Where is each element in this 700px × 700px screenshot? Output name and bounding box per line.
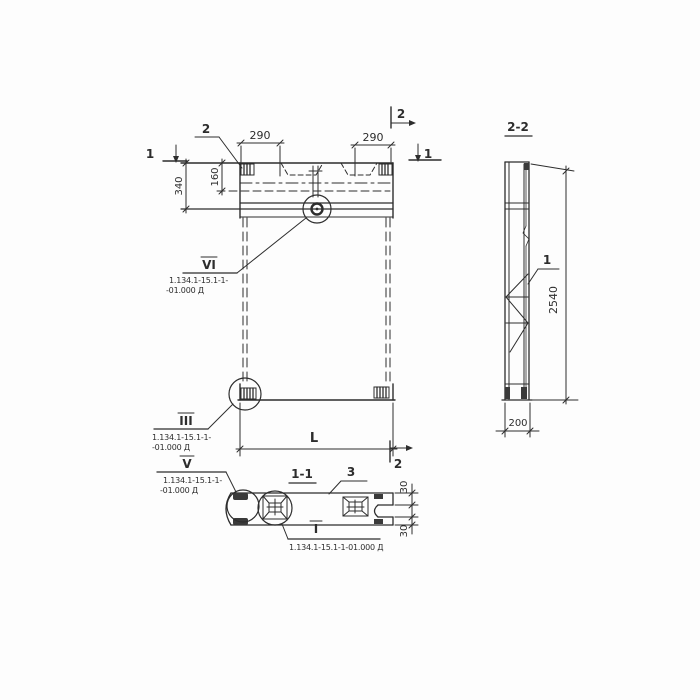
flag-vi-numeral: VI <box>202 258 216 272</box>
technical-drawing: 290 290 160 340 L <box>0 0 700 700</box>
section-mark-1-right: 1 <box>409 144 441 162</box>
section-mark-2-top-label: 2 <box>397 107 405 121</box>
top-notch-right <box>341 163 377 175</box>
dim-200-label: 200 <box>508 418 527 429</box>
section-mark-2-top: 2 <box>391 107 416 128</box>
keyway-left <box>263 496 287 519</box>
anchor-pad-bottom-left <box>241 388 256 399</box>
section-1-1-end-pads <box>233 493 383 525</box>
section-2-2-inner-lines <box>505 162 529 400</box>
flag-vi-ref-1: 1.134.1-15.1-1- <box>169 276 228 285</box>
dim-30-top-label: 30 <box>399 481 410 494</box>
flag-iii-ref-1: 1.134.1-15.1-1- <box>152 433 211 442</box>
flag-i-ref: 1.134.1-15.1-1-01.000 Д <box>289 543 383 552</box>
dim-340: 340 <box>174 159 189 213</box>
flag-iii: III 1.134.1-15.1-1- -01.000 Д <box>152 404 233 452</box>
section-mark-1-right-label: 1 <box>424 147 432 161</box>
dim-2540-label: 2540 <box>547 286 560 314</box>
anchor-pad-top-right <box>379 164 392 175</box>
section-1-1-title: 1-1 <box>291 467 313 481</box>
dim-length: L <box>236 403 397 456</box>
section-2-2-outline <box>502 162 532 400</box>
keyway-middle <box>343 497 368 516</box>
flag-v-ref-2: -01.000 Д <box>160 486 198 495</box>
callout-3-label: 3 <box>347 465 355 479</box>
anchor-pad-top-left <box>241 164 254 175</box>
front-view-top-band-lines <box>181 183 393 217</box>
section-mark-1-left-label: 1 <box>146 147 154 161</box>
callout-3: 3 <box>329 465 367 494</box>
callout-1-label: 1 <box>543 253 551 267</box>
front-view-hidden-edges <box>243 218 390 386</box>
callout-1: 1 <box>528 253 559 284</box>
flag-vi-ref-2: -01.000 Д <box>166 286 204 295</box>
dim-340-label: 340 <box>174 176 185 195</box>
top-notch-left <box>281 163 323 175</box>
blueprint-page: 290 290 160 340 L <box>0 0 700 700</box>
dim-160-label: 160 <box>210 167 221 186</box>
flag-iii-ref-2: -01.000 Д <box>152 443 190 452</box>
flag-vi: VI 1.134.1-15.1-1- -01.000 Д <box>166 218 306 295</box>
anchor-pad-bottom-right <box>374 387 389 398</box>
dim-2540: 2540 <box>531 164 578 404</box>
flag-iii-numeral: III <box>179 414 192 428</box>
dim-160: 160 <box>210 159 225 195</box>
section-2-2-title: 2-2 <box>507 120 529 134</box>
callout-2: 2 <box>195 122 242 168</box>
section-1-1-view: 1-1 <box>226 465 418 537</box>
dim-length-label: L <box>310 431 318 446</box>
section-mark-1-left: 1 <box>146 145 187 163</box>
flag-v-ref-1: 1.134.1-15.1-1- <box>163 476 222 485</box>
flag-i: I 1.134.1-15.1-1-01.000 Д <box>282 521 383 552</box>
flag-v-numeral: V <box>182 457 192 471</box>
dim-290-left-label: 290 <box>250 129 271 142</box>
dim-290-right-label: 290 <box>363 131 384 144</box>
dim-200: 200 <box>496 403 539 437</box>
dim-30-bottom-label: 30 <box>399 525 410 538</box>
section-2-2-view: 2-2 <box>496 120 578 437</box>
flag-v: V 1.134.1-15.1-1- -01.000 Д <box>157 456 236 495</box>
dim-30-group: 30 30 <box>395 481 418 538</box>
callout-2-label: 2 <box>202 122 210 136</box>
section-mark-2-bottom-label: 2 <box>394 457 402 471</box>
flag-i-numeral: I <box>314 522 318 536</box>
